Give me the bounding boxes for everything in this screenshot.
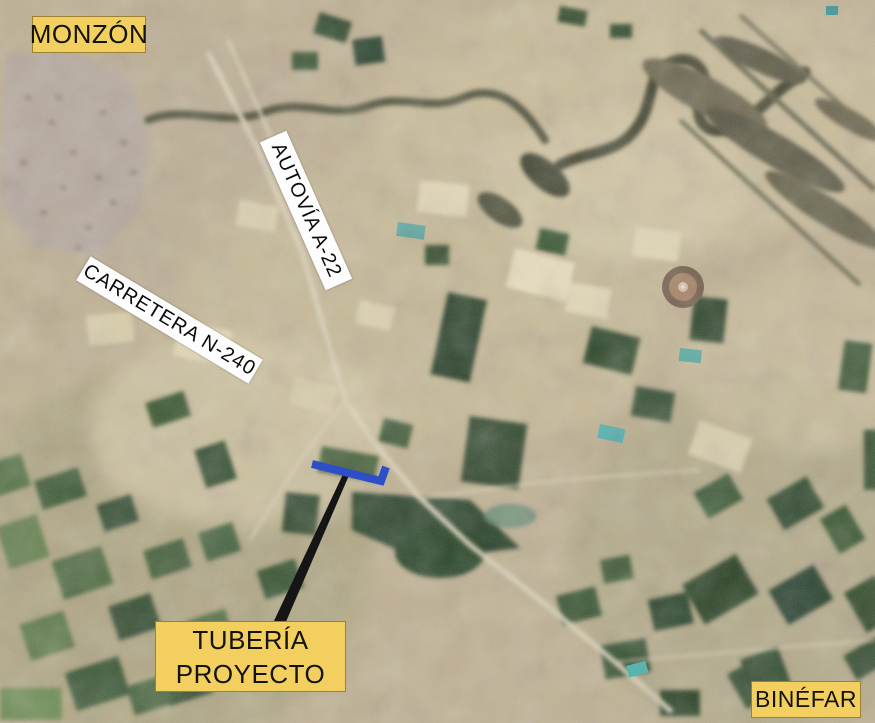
terrain-grain-overlay [0,0,875,723]
satellite-map-figure: MONZÓN BINÉFAR AUTOVÍA A-22 CARRETERA N-… [0,0,875,723]
callout-label-line2: PROYECTO [176,657,325,691]
callout-label-line1: TUBERÍA [192,623,308,657]
place-label-binefar-text: BINÉFAR [755,686,857,713]
place-label-binefar: BINÉFAR [751,681,861,718]
place-label-monzon: MONZÓN [32,16,146,53]
place-label-monzon-text: MONZÓN [30,19,149,50]
callout-label-tuberia-proyecto: TUBERÍA PROYECTO [155,621,346,692]
satellite-terrain-image [0,0,875,723]
